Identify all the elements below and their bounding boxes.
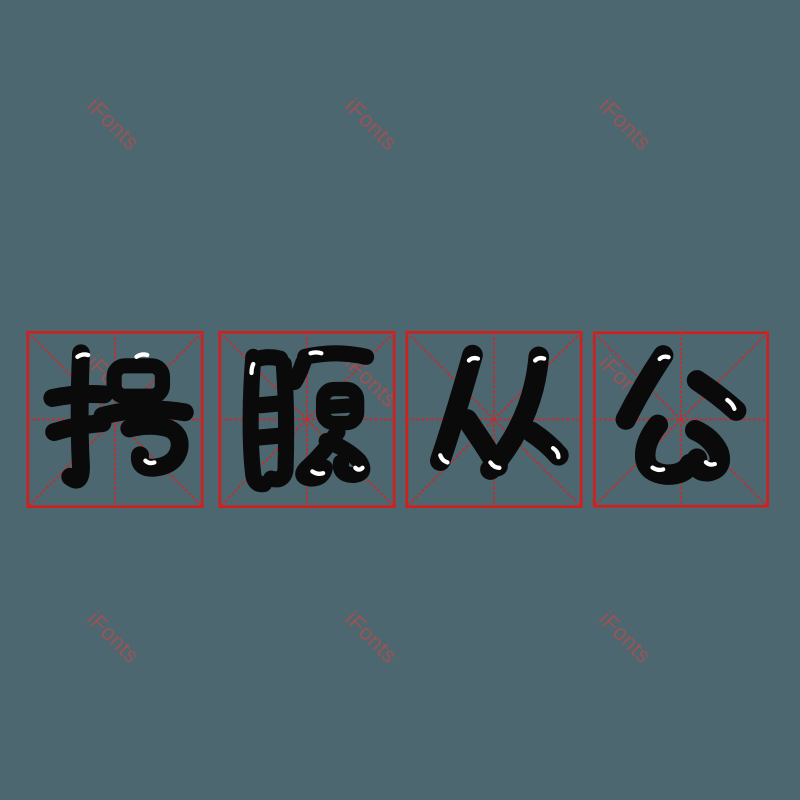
- ifonts-watermark: iFonts: [594, 606, 657, 669]
- hanzi-glyph-fu: [215, 330, 399, 509]
- hanzi-cell-2: [215, 330, 399, 509]
- rice-grid: [407, 332, 581, 506]
- ifonts-watermark: iFonts: [82, 93, 145, 156]
- glyph-strokes: [440, 355, 558, 470]
- hanzi-cell-1: [23, 330, 207, 509]
- font-preview-canvas: iFontsiFontsiFontsiFontsiFontsiFontsiFon…: [0, 0, 800, 800]
- hanzi-cell-4: [592, 330, 770, 509]
- ifonts-watermark: iFonts: [340, 606, 403, 669]
- ifonts-watermark: iFonts: [82, 606, 145, 669]
- ifonts-watermark: iFonts: [340, 93, 403, 156]
- ifonts-watermark: iFonts: [594, 93, 657, 156]
- hanzi-glyph-cong: [403, 330, 585, 509]
- glyph-strokes: [52, 353, 184, 479]
- hanzi-cell-3: [403, 330, 585, 509]
- hanzi-glyph-gong: [592, 330, 770, 509]
- hanzi-glyph-xiao: [23, 330, 207, 509]
